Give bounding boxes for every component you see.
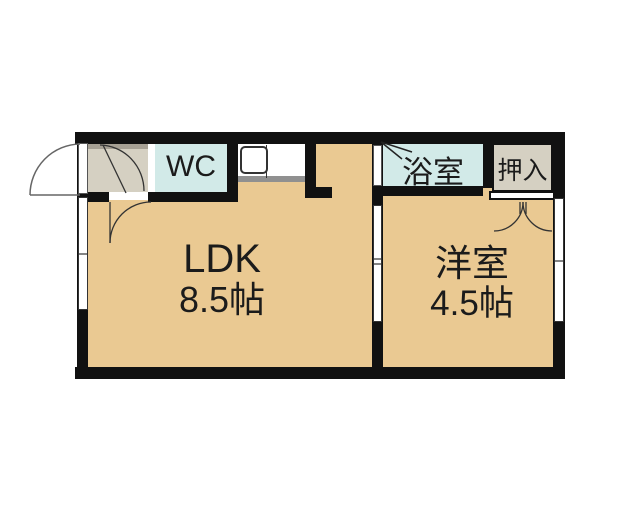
ldk-window xyxy=(78,197,88,310)
wall-wc-bottom xyxy=(148,192,238,202)
kitchen-counter-edge xyxy=(238,176,305,182)
western-label-block: 洋室 4.5帖 xyxy=(382,243,562,324)
western-name: 洋室 xyxy=(382,243,562,284)
western-size: 4.5帖 xyxy=(382,284,562,324)
ldk-label-block: LDK 8.5帖 xyxy=(122,238,322,320)
room-sliding-door xyxy=(373,205,382,322)
wc-door-frame xyxy=(148,143,155,192)
wall-kitchen-stub-foot xyxy=(305,187,332,198)
closet-sliding-door xyxy=(489,191,557,200)
kitchen-sink-divider xyxy=(266,145,267,178)
ldk-name: LDK xyxy=(122,238,322,280)
wall-entry-bottom xyxy=(88,192,109,202)
ldk-size: 8.5帖 xyxy=(122,280,322,320)
wc-label: WC xyxy=(155,150,227,184)
entrance-door-swing-icon xyxy=(30,144,80,195)
entrance-door-opening xyxy=(78,143,88,194)
entry-ldk-door-opening xyxy=(109,192,148,200)
wall-top xyxy=(75,132,565,144)
wall-bottom xyxy=(75,367,565,379)
floor-plan: WC 浴室 押入 LDK 8.5帖 洋室 4.5帖 xyxy=(0,0,640,512)
kitchen-sink xyxy=(240,146,268,174)
bath-label: 浴室 xyxy=(383,147,483,192)
entry-floor xyxy=(88,143,148,194)
closet-label: 押入 xyxy=(492,151,553,187)
bath-door-opening xyxy=(373,145,382,186)
